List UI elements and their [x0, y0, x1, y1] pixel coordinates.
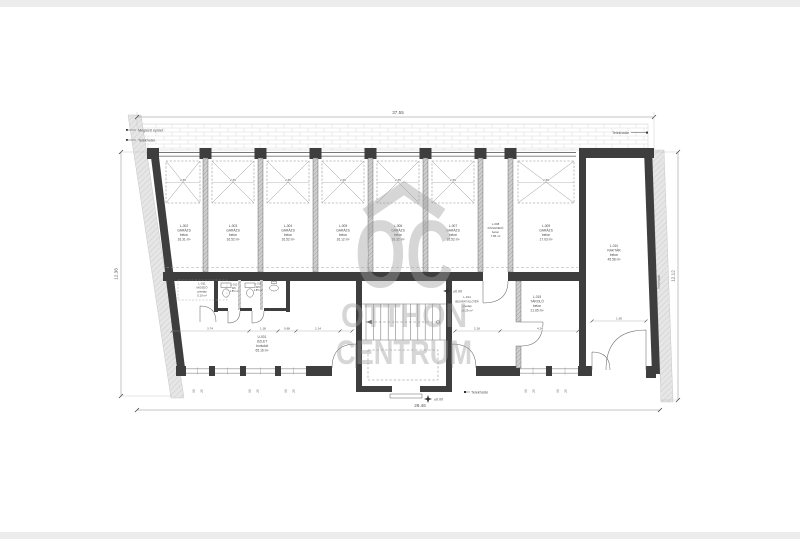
toilet-icon [223, 289, 230, 297]
right-band-label: Telekhatár [657, 274, 661, 290]
room-label-garage-7: L-009 GARÁZS beton 17.03 m² [539, 224, 553, 242]
bay-width-dim: 2.65 [285, 178, 291, 182]
svg-text:L-002: L-002 [180, 224, 189, 228]
property-line-note-right: Telekhatár [612, 131, 630, 135]
level-zero-label: ±0.00 [453, 289, 462, 293]
svg-text:17.03 m²: 17.03 m² [539, 238, 553, 242]
svg-text:GARÁZS: GARÁZS [281, 229, 295, 233]
svg-text:1.85 m²: 1.85 m² [230, 289, 239, 293]
watermark-word-1: OTTHON [341, 297, 467, 335]
svg-text:ÜZLET: ÜZLET [257, 340, 267, 344]
sill-mark: 90 [192, 389, 196, 393]
svg-text:L-015: L-015 [533, 295, 542, 299]
shop-dim: 2.14 [315, 327, 321, 331]
top-wall-right-room [584, 148, 654, 158]
shop-dim: 3.74 [207, 327, 213, 331]
bay-width-dim: 2.65 [543, 178, 549, 182]
svg-text:beton: beton [180, 233, 188, 237]
right-height-dim: 12.12 [671, 270, 676, 282]
room-label-washroom: L-011 MOSDÓ greslap 5.10 m² [178, 280, 227, 300]
sill-mark: 25 [564, 389, 568, 393]
svg-text:L-010: L-010 [610, 244, 619, 248]
svg-text:16.31 m²: 16.31 m² [177, 238, 191, 242]
svg-text:L-008: L-008 [492, 222, 500, 226]
corridor-door [483, 281, 508, 303]
svg-text:GARÁZS: GARÁZS [539, 229, 553, 233]
sink-tap [272, 282, 277, 284]
svg-text:7.86 m²: 7.86 m² [491, 234, 501, 238]
svg-text:16.12 m²: 16.12 m² [336, 238, 350, 242]
main-cross-wall [579, 149, 586, 368]
entry-dim: 4.24 [537, 327, 543, 331]
property-line-note-left: Telekhatár [138, 139, 156, 143]
svg-text:L-005: L-005 [339, 224, 348, 228]
bottom-width-dim: 28.46 [414, 403, 426, 408]
svg-text:beton: beton [610, 253, 618, 257]
shop-dim: 1.38 [260, 327, 266, 331]
svg-text:L-004: L-004 [284, 224, 293, 228]
wc-door-2 [252, 311, 264, 323]
svg-text:L-003: L-003 [229, 224, 238, 228]
room-label-garage-4: L-005 GARÁZS beton 16.12 m² [336, 224, 350, 242]
svg-text:GARÁZS: GARÁZS [226, 229, 240, 233]
toilet-tank-1 [221, 283, 231, 288]
shop-dim: 0.88 [284, 327, 290, 331]
svg-text:RAKTÁR: RAKTÁR [607, 249, 621, 253]
room-label-right-storage: L-010 RAKTÁR beton 45.58 m² [607, 244, 621, 262]
scan-edge-bottom [0, 532, 800, 539]
svg-text:5.10 m²: 5.10 m² [197, 294, 207, 298]
svg-text:16.52 m²: 16.52 m² [281, 238, 295, 242]
svg-text:TÁROLÓ: TÁROLÓ [530, 299, 544, 304]
entry-dim: 2.18 [474, 327, 480, 331]
left-height-dim: 12.38 [114, 268, 119, 280]
floor-plan-canvas: Telekhatár 37.55 28.46 12.38 12.12 Meglé… [0, 0, 800, 539]
washroom-door [200, 306, 216, 322]
svg-text:L-009: L-009 [542, 224, 551, 228]
sill-mark: 90 [556, 389, 560, 393]
svg-text:21.65 m²: 21.65 m² [530, 309, 544, 313]
level-zero-label: ±0.00 [434, 397, 443, 401]
sill-mark: 25 [292, 389, 296, 393]
entrance-steps [390, 394, 422, 398]
door-width-dim: 1.90 [616, 317, 622, 321]
svg-text:beton: beton [284, 233, 292, 237]
scan-edge-top [0, 0, 800, 7]
sill-mark: 25 [256, 389, 260, 393]
sill-mark: 90 [248, 389, 252, 393]
wc-door-1 [228, 311, 240, 323]
right-room-door-large [606, 330, 646, 370]
svg-text:U-001: U-001 [258, 335, 267, 339]
svg-text:beton: beton [229, 233, 237, 237]
bay-width-dim: 2.65 [395, 178, 401, 182]
overall-width-dim: 37.55 [392, 110, 404, 115]
toilet-icon [247, 289, 254, 297]
sill-mark: 90 [524, 389, 528, 393]
storage-door [521, 322, 543, 346]
svg-text:GARÁZS: GARÁZS [177, 229, 191, 233]
svg-text:16.52 m²: 16.52 m² [226, 238, 240, 242]
svg-text:65.16 m²: 65.16 m² [255, 349, 269, 353]
bay-width-dim: 2.65 [180, 178, 186, 182]
bay-width-dim: 2.65 [230, 178, 236, 182]
sill-mark: 25 [532, 389, 536, 393]
level-star-icon [424, 395, 432, 403]
svg-text:1.85 m²: 1.85 m² [254, 288, 263, 292]
pavement-hatch-band [140, 124, 648, 150]
room-label-garage-1: L-002 GARÁZS beton 16.31 m² [177, 224, 191, 242]
svg-text:beton: beton [533, 304, 541, 308]
existing-building-note: Meglévő épület [138, 129, 163, 133]
room-label-storage: L-015 TÁROLÓ beton 21.65 m² [530, 295, 544, 313]
room-label-shop: U-001 ÜZLET burkolat 65.16 m² [255, 335, 269, 353]
room-label-corridor: L-008 KÖZLEKEDŐ beton 7.86 m² [488, 222, 504, 238]
property-line-note-bottom: Telekhatár [471, 391, 489, 395]
room-label-wc-1: L-012 WC 1.85 m² [230, 283, 239, 294]
watermark-monogram: OC [355, 201, 453, 308]
svg-text:45.58 m²: 45.58 m² [607, 258, 621, 262]
sill-mark: 25 [200, 389, 204, 393]
svg-text:beton: beton [339, 233, 347, 237]
svg-text:burkolat: burkolat [256, 344, 268, 348]
room-label-garage-2: L-003 GARÁZS beton 16.52 m² [226, 224, 240, 242]
toilet-tank-2 [245, 283, 255, 288]
watermark-word-2: CENTRUM [336, 334, 472, 372]
bay-width-dim: 2.65 [450, 178, 456, 182]
watermark: OC OTTHON CENTRUM [336, 188, 472, 372]
sill-mark: 90 [284, 389, 288, 393]
svg-text:beton: beton [542, 233, 550, 237]
room-label-garage-3: L-004 GARÁZS beton 16.52 m² [281, 224, 295, 242]
svg-text:GARÁZS: GARÁZS [336, 229, 350, 233]
right-room-door-small [592, 352, 610, 370]
bay-width-dim: 2.65 [340, 178, 346, 182]
sink-icon [270, 285, 279, 291]
